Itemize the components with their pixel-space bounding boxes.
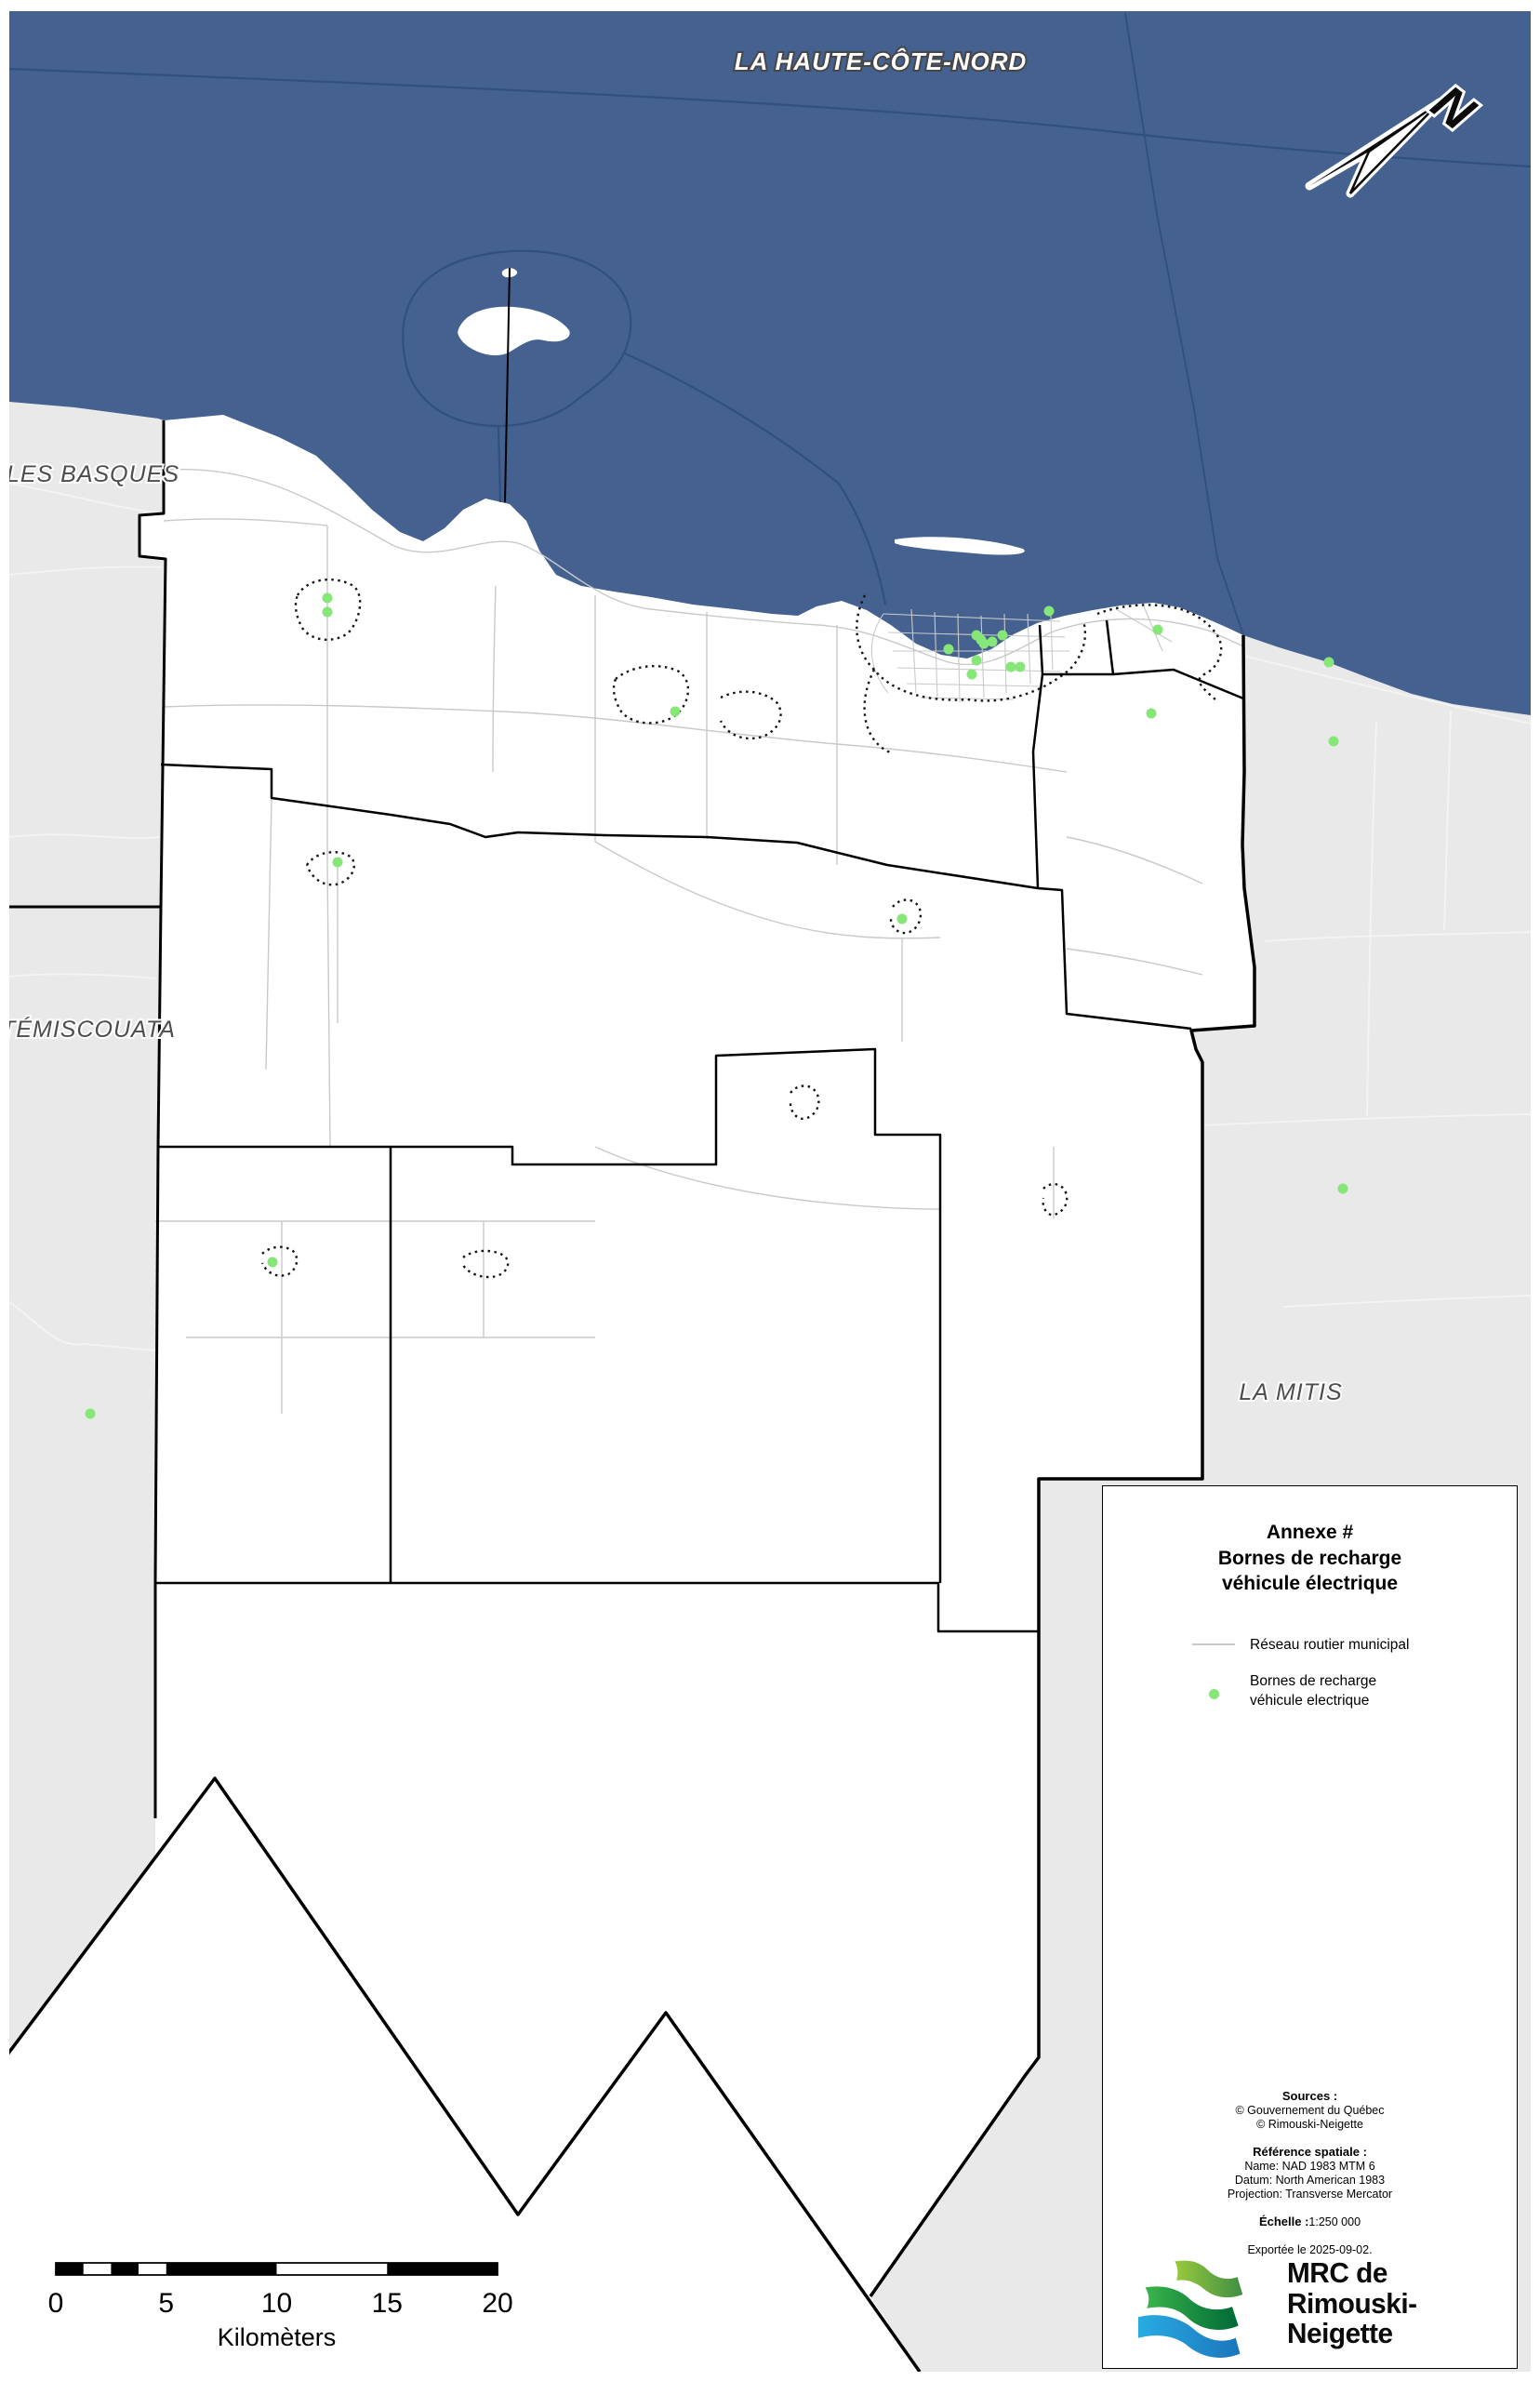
- scale-tick-20: 20: [482, 2288, 512, 2319]
- charging-station-point: [967, 670, 977, 680]
- label-la-haute-cote-nord: LA HAUTE-CÔTE-NORD: [735, 47, 1028, 75]
- mrc-logo: MRC de Rimouski-Neigette: [1138, 2253, 1517, 2362]
- charging-station-point: [1044, 606, 1055, 617]
- charging-station-point: [1324, 658, 1334, 668]
- reference-line2: Datum: North American 1983: [1235, 2174, 1385, 2187]
- scale-tick-0: 0: [48, 2288, 64, 2319]
- scale-value: 1:250 000: [1308, 2215, 1361, 2228]
- sources-line2: © Rimouski-Neigette: [1256, 2118, 1363, 2131]
- road-line-swatch: [1192, 1643, 1235, 1645]
- legend-item-stations: Bornes de recharge véhicule electrique: [1185, 1672, 1517, 1711]
- charging-station-point: [1329, 737, 1339, 747]
- ribbon-light-green: [1175, 2261, 1242, 2298]
- legend-item-stations-label: Bornes de recharge véhicule electrique: [1242, 1672, 1376, 1711]
- charging-station-point: [988, 637, 998, 647]
- mrc-logo-text: MRC de Rimouski-Neigette: [1287, 2258, 1507, 2349]
- charging-station-point: [1153, 625, 1163, 635]
- station-dot-swatch: [1209, 1689, 1219, 1699]
- charging-station-point: [1147, 709, 1157, 719]
- charging-station-point: [268, 1257, 278, 1268]
- charging-station-point: [1006, 662, 1016, 672]
- charging-station-point: [944, 645, 954, 655]
- reference-line3: Projection: Transverse Mercator: [1228, 2188, 1392, 2201]
- legend-credits: Sources : © Gouvernement du Québec © Rim…: [1103, 2089, 1517, 2271]
- charging-station-point: [670, 707, 681, 717]
- charging-station-point: [972, 656, 982, 666]
- mrc-logo-ribbons: [1138, 2253, 1281, 2362]
- charging-station-point: [897, 914, 908, 924]
- charging-station-point: [998, 631, 1008, 641]
- reference-heading: Référence spatiale :: [1253, 2145, 1367, 2159]
- reference-line1: Name: NAD 1983 MTM 6: [1244, 2160, 1374, 2173]
- charging-station-point: [323, 593, 333, 604]
- scale-tick-15: 15: [372, 2288, 403, 2319]
- charging-station-point: [323, 607, 333, 618]
- legend-title-line1: Annexe #: [1103, 1520, 1517, 1546]
- legend-title-line3: véhicule électrique: [1103, 1571, 1517, 1597]
- legend-item-roads-label: Réseau routier municipal: [1242, 1636, 1409, 1656]
- sources-heading: Sources :: [1282, 2089, 1337, 2103]
- scale-heading: Échelle :: [1259, 2215, 1308, 2228]
- sources-line1: © Gouvernement du Québec: [1236, 2104, 1385, 2117]
- region-les-basques-temiscouata: [9, 402, 166, 2052]
- charging-station-point: [86, 1409, 96, 1419]
- map-export-page: LA HAUTE-CÔTE-NORD LES BASQUES TÉMISCOUA…: [0, 0, 1540, 2381]
- scale-unit: Kilomèters: [218, 2323, 337, 2351]
- scale-tick-10: 10: [261, 2288, 292, 2319]
- legend-panel: Annexe # Bornes de recharge véhicule éle…: [1102, 1485, 1518, 2369]
- scale-tick-5: 5: [158, 2288, 174, 2319]
- charging-station-point: [1338, 1184, 1348, 1194]
- charging-station-point: [333, 858, 343, 868]
- label-la-mitis: LA MITIS: [1239, 1379, 1342, 1405]
- legend-title: Annexe # Bornes de recharge véhicule éle…: [1103, 1520, 1517, 1597]
- legend-title-line2: Bornes de recharge: [1103, 1546, 1517, 1572]
- label-les-basques: LES BASQUES: [7, 461, 179, 487]
- charging-station-point: [1016, 662, 1026, 672]
- legend-item-roads: Réseau routier municipal: [1185, 1636, 1517, 1656]
- label-temiscouata: TÉMISCOUATA: [1, 1016, 176, 1043]
